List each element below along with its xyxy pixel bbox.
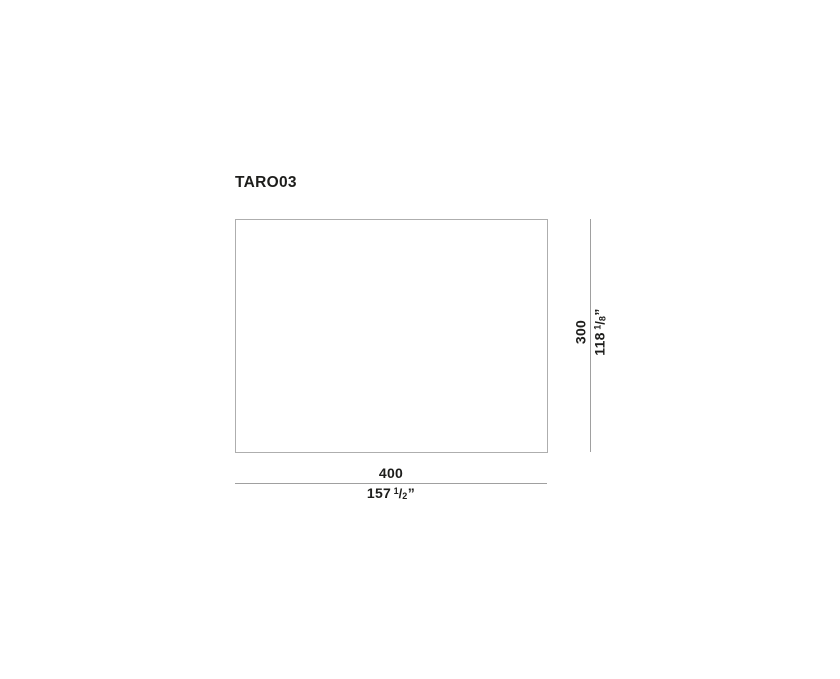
height-inches-whole: 118	[591, 332, 607, 356]
width-dimension-cm-label: 400	[235, 466, 547, 481]
width-inches-fraction-denominator: 2	[402, 491, 407, 501]
technical-drawing-page: TARO03 300 1181/8” 400 1571/2”	[0, 0, 840, 679]
product-code-title: TARO03	[235, 174, 297, 191]
height-dimension-cm-label: 300	[573, 320, 588, 344]
height-inches-mark: ”	[591, 308, 607, 315]
height-inches-fraction-numerator: 1	[592, 325, 602, 330]
width-inches-mark: ”	[408, 485, 415, 501]
width-dimension-inches-label: 1571/2”	[235, 486, 547, 501]
width-inches-fraction-numerator: 1	[394, 486, 399, 496]
width-inches-whole: 157	[367, 485, 391, 501]
width-dimension-line	[235, 483, 547, 484]
product-outline-rectangle	[235, 219, 548, 453]
height-inches-fraction-denominator: 8	[597, 316, 607, 321]
height-dimension-inches-label: 1181/8”	[592, 308, 607, 355]
